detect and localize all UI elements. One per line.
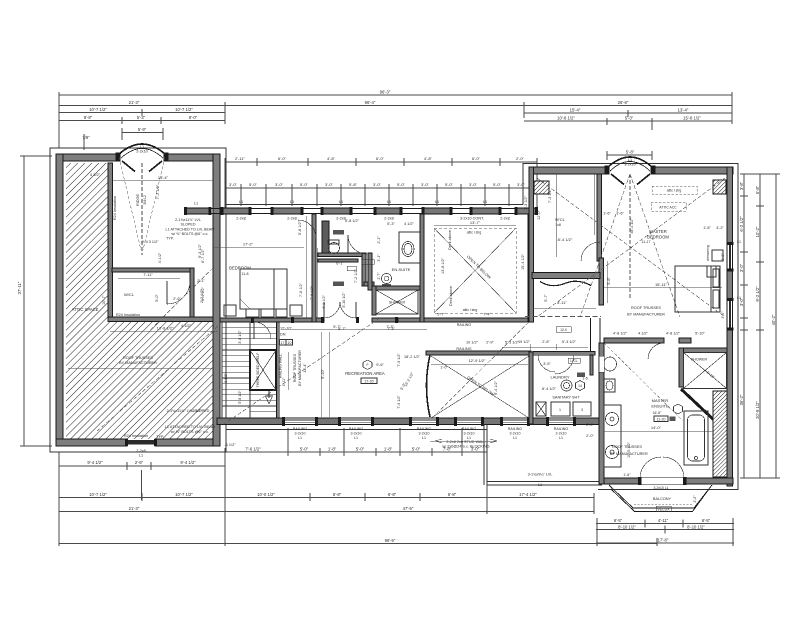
svg-text:10'-7 1/2": 10'-7 1/2" bbox=[89, 492, 107, 497]
svg-text:9'-2 1/2": 9'-2 1/2" bbox=[755, 286, 760, 302]
svg-text:SANITARY SHT: SANITARY SHT bbox=[552, 396, 580, 400]
svg-text:L1: L1 bbox=[737, 296, 741, 300]
svg-text:2-1¾x11⅞" LVL SLOPED: 2-1¾x11⅞" LVL SLOPED bbox=[167, 409, 210, 413]
svg-text:4'-8": 4'-8" bbox=[327, 156, 336, 161]
svg-text:5'-0": 5'-0" bbox=[412, 447, 421, 452]
svg-text:5'-0": 5'-0" bbox=[397, 182, 406, 187]
svg-text:2-2x8: 2-2x8 bbox=[287, 217, 297, 221]
svg-text:Deck above: Deck above bbox=[449, 286, 453, 306]
svg-text:10'-7 1/2": 10'-7 1/2" bbox=[175, 492, 193, 497]
svg-text:DN: DN bbox=[280, 333, 286, 337]
svg-text:TYP.: TYP. bbox=[166, 237, 174, 241]
svg-text:L1: L1 bbox=[387, 200, 391, 204]
svg-text:5'-3 1/2": 5'-3 1/2" bbox=[562, 340, 577, 344]
svg-text:8'-4 1/2": 8'-4 1/2" bbox=[542, 387, 557, 391]
svg-text:L1 ATTACHED TO LVL BEAM: L1 ATTACHED TO LVL BEAM bbox=[165, 425, 215, 429]
svg-text:5'-0": 5'-0" bbox=[155, 294, 159, 302]
svg-text:2-2x10: 2-2x10 bbox=[136, 150, 148, 154]
svg-text:attic l strg: attic l strg bbox=[463, 308, 478, 312]
svg-text:L1: L1 bbox=[339, 200, 343, 204]
svg-text:L1 ATTACHED TO LVL BEAM: L1 ATTACHED TO LVL BEAM bbox=[166, 228, 215, 232]
svg-text:TYP.: TYP. bbox=[156, 435, 164, 439]
svg-text:10'-2": 10'-2" bbox=[755, 226, 760, 237]
svg-text:L1: L1 bbox=[628, 158, 632, 162]
svg-text:1'-8": 1'-8" bbox=[328, 447, 337, 452]
svg-text:4'-2": 4'-2" bbox=[716, 226, 724, 230]
svg-text:10: 10 bbox=[288, 341, 292, 345]
svg-text:9'-4 3 1/2": 9'-4 3 1/2" bbox=[141, 240, 159, 244]
svg-text:3/4:12: 3/4:12 bbox=[143, 195, 147, 205]
svg-text:RAILING: RAILING bbox=[457, 323, 472, 327]
svg-text:5'-10": 5'-10" bbox=[695, 332, 705, 336]
svg-text:1x8: 1x8 bbox=[555, 223, 561, 227]
svg-text:6'-8": 6'-8" bbox=[448, 492, 457, 497]
svg-text:5'-8 1/2": 5'-8 1/2" bbox=[345, 219, 360, 223]
svg-text:L1: L1 bbox=[559, 436, 563, 440]
svg-text:2-2x8: 2-2x8 bbox=[136, 449, 146, 453]
svg-text:R24 Insulation: R24 Insulation bbox=[124, 434, 148, 438]
svg-text:2-2x8: 2-2x8 bbox=[236, 217, 246, 221]
svg-text:2-1¾x11⅞" LVL: 2-1¾x11⅞" LVL bbox=[175, 218, 201, 222]
svg-text:w/ ⅝" BOLTS @6" o.c.: w/ ⅝" BOLTS @6" o.c. bbox=[171, 232, 208, 236]
svg-text:3-2x10: 3-2x10 bbox=[419, 432, 430, 436]
svg-text:10'-8 1/2": 10'-8 1/2" bbox=[557, 116, 575, 121]
svg-text:1'-8": 1'-8" bbox=[384, 447, 393, 452]
svg-text:L1: L1 bbox=[354, 436, 358, 440]
svg-text:L1: L1 bbox=[140, 145, 144, 149]
svg-text:9'-6": 9'-6" bbox=[376, 363, 384, 367]
svg-text:4'-11": 4'-11" bbox=[658, 518, 669, 523]
svg-text:F: F bbox=[366, 363, 368, 367]
svg-text:9'-4 1/2": 9'-4 1/2" bbox=[180, 460, 196, 465]
svg-text:5'-0": 5'-0" bbox=[300, 447, 309, 452]
svg-text:2'-1": 2'-1" bbox=[377, 236, 381, 244]
svg-text:5'-7": 5'-7" bbox=[544, 294, 548, 302]
svg-text:w/ ⅝" BOLTS @6" o.c.: w/ ⅝" BOLTS @6" o.c. bbox=[171, 430, 209, 434]
svg-text:8'-10 1/2": 8'-10 1/2" bbox=[618, 525, 636, 530]
svg-text:RAILING: RAILING bbox=[293, 427, 308, 431]
svg-text:SLOPED: SLOPED bbox=[181, 223, 196, 227]
svg-text:2'-1": 2'-1" bbox=[197, 279, 205, 283]
svg-text:4 1/2": 4 1/2" bbox=[181, 324, 191, 328]
svg-text:RECREATION AREA: RECREATION AREA bbox=[345, 371, 385, 376]
svg-text:4 1/2": 4 1/2" bbox=[90, 172, 101, 177]
svg-text:VELUX: VELUX bbox=[657, 508, 670, 512]
svg-text:17'-4 1/2": 17'-4 1/2" bbox=[519, 492, 537, 497]
svg-text:5'-8 1/2": 5'-8 1/2" bbox=[298, 220, 302, 235]
svg-text:38'-4 1/2": 38'-4 1/2" bbox=[630, 218, 634, 234]
svg-text:17'-2": 17'-2" bbox=[243, 242, 254, 247]
svg-text:4'-11": 4'-11" bbox=[282, 377, 286, 386]
svg-text:18'-2 1/2": 18'-2 1/2" bbox=[404, 355, 421, 359]
svg-text:7'-3": 7'-3" bbox=[387, 327, 395, 331]
svg-text:L1: L1 bbox=[435, 200, 439, 204]
svg-text:14'-0": 14'-0" bbox=[651, 425, 662, 430]
svg-text:L1: L1 bbox=[513, 436, 517, 440]
svg-text:3'-0": 3'-0" bbox=[517, 182, 526, 187]
svg-text:3'-0": 3'-0" bbox=[325, 182, 334, 187]
svg-text:RAILING: RAILING bbox=[349, 427, 364, 431]
svg-text:L1: L1 bbox=[422, 436, 426, 440]
svg-text:3-2x10: 3-2x10 bbox=[351, 432, 362, 436]
svg-text:13'-7": 13'-7" bbox=[470, 220, 481, 225]
svg-text:10'-7 1/2": 10'-7 1/2" bbox=[89, 107, 107, 112]
svg-text:7'-2 1/2": 7'-2 1/2" bbox=[155, 184, 160, 199]
svg-text:2'-0": 2'-0" bbox=[586, 434, 594, 438]
svg-text:EN-SUITE: EN-SUITE bbox=[392, 267, 411, 272]
svg-text:2'-6": 2'-6" bbox=[135, 460, 144, 465]
svg-text:ROOF TRUSSES: ROOF TRUSSES bbox=[293, 353, 297, 382]
svg-text:L1: L1 bbox=[298, 436, 302, 440]
svg-text:26'-8": 26'-8" bbox=[618, 100, 629, 105]
svg-text:7'-2 1/2": 7'-2 1/2" bbox=[354, 268, 358, 283]
svg-text:12'-9 1/2": 12'-9 1/2" bbox=[469, 358, 486, 363]
svg-text:5'-0": 5'-0" bbox=[300, 182, 309, 187]
svg-text:RAILING: RAILING bbox=[462, 427, 477, 431]
svg-text:7'-6 1/2": 7'-6 1/2" bbox=[245, 447, 261, 452]
svg-text:5'-3": 5'-3" bbox=[137, 115, 146, 120]
svg-text:3-2x10: 3-2x10 bbox=[510, 432, 521, 436]
svg-text:ATTIC ACC: ATTIC ACC bbox=[659, 206, 677, 210]
svg-text:10'-5 1/2": 10'-5 1/2" bbox=[627, 441, 631, 458]
svg-text:4'-8": 4'-8" bbox=[424, 156, 433, 161]
svg-text:MASTER: MASTER bbox=[649, 229, 666, 234]
svg-text:ROOF TRUSSES: ROOF TRUSSES bbox=[631, 306, 661, 310]
svg-text:15'-11": 15'-11" bbox=[655, 282, 668, 287]
svg-text:8'-4 1/2": 8'-4 1/2" bbox=[558, 237, 573, 242]
svg-text:4'-1/2": 4'-1/2" bbox=[158, 252, 162, 263]
svg-text:7'-9 1/2": 7'-9 1/2" bbox=[397, 395, 401, 409]
svg-text:6'-0": 6'-0" bbox=[472, 156, 481, 161]
svg-text:2'-9": 2'-9" bbox=[486, 341, 494, 345]
svg-text:2-2x8: 2-2x8 bbox=[500, 217, 510, 221]
svg-text:Deck above: Deck above bbox=[448, 230, 452, 250]
svg-text:1'-6": 1'-6" bbox=[623, 473, 631, 477]
svg-text:8'-0": 8'-0" bbox=[189, 115, 198, 120]
svg-text:W/CL: W/CL bbox=[124, 292, 135, 297]
svg-text:3-2x10 L1: 3-2x10 L1 bbox=[653, 486, 668, 490]
svg-text:11-8: 11-8 bbox=[242, 272, 249, 276]
svg-text:RAILING: RAILING bbox=[456, 347, 471, 351]
svg-text:8'-7": 8'-7" bbox=[338, 327, 346, 331]
svg-text:attic l strg: attic l strg bbox=[467, 231, 482, 235]
svg-text:6'-1": 6'-1" bbox=[336, 262, 344, 266]
svg-text:RAILING: RAILING bbox=[554, 427, 569, 431]
svg-text:L/CL: L/CL bbox=[570, 359, 577, 363]
svg-text:7'-9 1/2": 7'-9 1/2" bbox=[397, 353, 401, 367]
svg-text:5'-3": 5'-3" bbox=[625, 116, 634, 121]
svg-text:13'-4": 13'-4" bbox=[158, 175, 169, 180]
svg-text:5'-10 1/2": 5'-10 1/2" bbox=[342, 292, 346, 308]
svg-text:14: 14 bbox=[578, 384, 582, 388]
svg-text:7'-3 1/2": 7'-3 1/2" bbox=[524, 195, 528, 210]
svg-text:3'-1": 3'-1" bbox=[377, 254, 381, 262]
svg-text:8 1/2": 8 1/2" bbox=[224, 373, 228, 383]
svg-text:BALCONY: BALCONY bbox=[653, 497, 672, 501]
svg-text:21'-3": 21'-3" bbox=[129, 506, 140, 511]
svg-text:9'-4 1/2": 9'-4 1/2" bbox=[87, 460, 103, 465]
svg-text:6'-5": 6'-5" bbox=[702, 518, 711, 523]
svg-text:L1: L1 bbox=[483, 200, 487, 204]
svg-text:3'-0": 3'-0" bbox=[373, 182, 382, 187]
svg-text:MASTER: MASTER bbox=[652, 398, 669, 403]
svg-text:BEDROOM: BEDROOM bbox=[647, 235, 669, 240]
svg-text:L1: L1 bbox=[194, 202, 198, 206]
svg-text:4 1/2": 4 1/2" bbox=[638, 332, 648, 336]
svg-text:2-2x10: 2-2x10 bbox=[556, 432, 567, 436]
svg-text:7'-3 1/2": 7'-3 1/2" bbox=[548, 188, 552, 203]
svg-text:5'-0": 5'-0" bbox=[493, 182, 502, 187]
svg-text:8'-10 1/2": 8'-10 1/2" bbox=[687, 525, 705, 530]
svg-text:7'-11": 7'-11" bbox=[143, 273, 153, 277]
svg-text:12'-0": 12'-0" bbox=[537, 210, 541, 220]
svg-text:2'-6": 2'-6" bbox=[173, 297, 181, 301]
svg-text:W'CL: W'CL bbox=[555, 217, 565, 222]
svg-text:3'-0": 3'-0" bbox=[421, 182, 430, 187]
svg-text:4 1/2": 4 1/2" bbox=[404, 222, 414, 226]
svg-text:2'-0": 2'-0" bbox=[516, 156, 525, 161]
svg-text:2'-11": 2'-11" bbox=[235, 156, 245, 161]
svg-text:SHOWER: SHOWER bbox=[691, 358, 708, 362]
svg-text:RAILING: RAILING bbox=[508, 427, 523, 431]
svg-text:BY MANUFACTURER: BY MANUFACTURER bbox=[627, 313, 665, 317]
svg-text:15'-8 1/2": 15'-8 1/2" bbox=[683, 116, 701, 121]
svg-text:6'-8": 6'-8" bbox=[388, 492, 397, 497]
svg-text:17'-8": 17'-8" bbox=[658, 538, 669, 543]
svg-text:19 1/2": 19 1/2" bbox=[518, 340, 531, 344]
svg-text:36'-2": 36'-2" bbox=[739, 394, 744, 405]
svg-text:11-20: 11-20 bbox=[657, 418, 666, 422]
svg-text:dressering: dressering bbox=[706, 245, 710, 261]
svg-text:RAILING WALL: RAILING WALL bbox=[279, 354, 283, 378]
svg-text:8'-8": 8'-8" bbox=[84, 115, 93, 120]
svg-text:7'-6 1/2": 7'-6 1/2" bbox=[299, 282, 303, 297]
svg-text:4'-8 1/2": 4'-8 1/2" bbox=[666, 332, 681, 336]
svg-text:w/ 2x6@24"o.c. BLOCKING: w/ 2x6@24"o.c. BLOCKING bbox=[442, 445, 489, 449]
svg-text:13'-8 1/2": 13'-8 1/2" bbox=[441, 257, 445, 274]
svg-text:5'-8": 5'-8" bbox=[626, 150, 635, 155]
svg-text:2'-7": 2'-7" bbox=[377, 272, 381, 280]
svg-text:12-0: 12-0 bbox=[560, 328, 567, 332]
svg-text:L1: L1 bbox=[538, 483, 542, 487]
svg-text:1'-0": 1'-0" bbox=[440, 366, 448, 370]
svg-text:17: 17 bbox=[281, 341, 285, 345]
svg-text:17-20: 17-20 bbox=[364, 380, 373, 384]
svg-text:47'-5": 47'-5" bbox=[403, 506, 414, 511]
svg-text:6'-8": 6'-8" bbox=[333, 492, 342, 497]
svg-text:12'-4": 12'-4" bbox=[303, 363, 307, 373]
svg-text:7/8": 7/8" bbox=[82, 135, 90, 140]
svg-text:6'-2 1/2": 6'-2 1/2" bbox=[739, 216, 744, 232]
svg-text:2-2x6 2x6 STUD WALL: 2-2x6 2x6 STUD WALL bbox=[446, 440, 485, 444]
svg-text:2'-0": 2'-0" bbox=[586, 423, 594, 427]
svg-text:7'-4": 7'-4" bbox=[483, 313, 491, 317]
svg-text:96'-3": 96'-3" bbox=[380, 90, 391, 95]
svg-text:BY MANUFACTURER: BY MANUFACTURER bbox=[119, 361, 157, 365]
svg-text:96'-5": 96'-5" bbox=[385, 538, 396, 543]
svg-text:5'-0": 5'-0" bbox=[249, 182, 258, 187]
svg-text:3-2x10: 3-2x10 bbox=[464, 432, 475, 436]
svg-text:10'-7 1/2": 10'-7 1/2" bbox=[175, 107, 193, 112]
svg-text:RIDGE: RIDGE bbox=[136, 194, 140, 206]
svg-text:ROOF TRUSSES: ROOF TRUSSES bbox=[123, 356, 153, 360]
svg-text:3'-0": 3'-0" bbox=[275, 182, 284, 187]
svg-text:13'-8 1/2": 13'-8 1/2" bbox=[157, 326, 174, 331]
svg-text:40'-2": 40'-2" bbox=[771, 314, 776, 325]
svg-text:21'-3": 21'-3" bbox=[129, 100, 140, 105]
svg-text:L1: L1 bbox=[290, 200, 294, 204]
svg-text:L1: L1 bbox=[139, 454, 143, 458]
svg-text:2-2x8: 2-2x8 bbox=[384, 217, 394, 221]
svg-text:6'-4 1/2": 6'-4 1/2" bbox=[201, 286, 205, 301]
svg-text:4'-8 1/2": 4'-8 1/2" bbox=[613, 332, 628, 336]
svg-text:4 1/2": 4 1/2" bbox=[192, 409, 202, 413]
svg-text:10 1/2": 10 1/2" bbox=[466, 341, 479, 345]
svg-text:L1: L1 bbox=[737, 240, 741, 244]
svg-text:96'-4": 96'-4" bbox=[365, 100, 376, 105]
svg-text:6'-5": 6'-5" bbox=[614, 518, 623, 523]
svg-text:BY MANUFACTURER: BY MANUFACTURER bbox=[298, 350, 302, 386]
svg-text:R24 Insulation: R24 Insulation bbox=[113, 196, 117, 220]
svg-text:37'-11": 37'-11" bbox=[17, 281, 22, 294]
svg-text:3'-8 1/2": 3'-8 1/2" bbox=[238, 330, 242, 344]
svg-text:1'-6": 1'-6" bbox=[603, 212, 611, 216]
svg-text:5'-7": 5'-7" bbox=[437, 313, 445, 317]
svg-text:SHOWER: SHOWER bbox=[389, 301, 406, 305]
svg-text:2'-8": 2'-8" bbox=[542, 340, 550, 344]
svg-text:-6 1/2": -6 1/2" bbox=[224, 443, 236, 447]
svg-text:1'-8": 1'-8" bbox=[703, 226, 711, 230]
svg-text:RAILING: RAILING bbox=[417, 427, 432, 431]
svg-text:10'-0 1/2": 10'-0 1/2" bbox=[257, 492, 275, 497]
svg-text:8'-11": 8'-11" bbox=[557, 301, 567, 305]
svg-text:5'-10": 5'-10" bbox=[321, 369, 325, 379]
svg-text:6'-7 1/2": 6'-7 1/2" bbox=[201, 248, 205, 263]
svg-text:R24 Insulation: R24 Insulation bbox=[116, 313, 140, 317]
svg-text:3'-8": 3'-8" bbox=[739, 181, 744, 190]
svg-text:5'-8": 5'-8" bbox=[349, 182, 358, 187]
svg-text:5'-6": 5'-6" bbox=[607, 277, 611, 285]
svg-text:5'-9": 5'-9" bbox=[138, 127, 147, 132]
svg-text:3: 3 bbox=[581, 408, 583, 412]
svg-text:9'-4 1/2": 9'-4 1/2" bbox=[494, 380, 498, 395]
svg-text:3-2x10: 3-2x10 bbox=[295, 432, 306, 436]
svg-text:3'-0": 3'-0" bbox=[229, 182, 238, 187]
svg-text:6'-0": 6'-0" bbox=[376, 156, 385, 161]
svg-text:10'-7": 10'-7" bbox=[102, 295, 106, 305]
svg-text:THREE SIDED SHELF: THREE SIDED SHELF bbox=[256, 353, 260, 388]
svg-text:3'-0": 3'-0" bbox=[739, 263, 744, 272]
svg-text:3'-0": 3'-0" bbox=[469, 182, 478, 187]
svg-text:3-1¾x9¼" LVL: 3-1¾x9¼" LVL bbox=[528, 473, 553, 477]
svg-text:5'-0": 5'-0" bbox=[356, 447, 365, 452]
svg-text:5'-8": 5'-8" bbox=[755, 185, 760, 194]
svg-text:3-2x10: 3-2x10 bbox=[624, 163, 636, 167]
svg-text:7'-6 1/2": 7'-6 1/2" bbox=[310, 285, 314, 300]
svg-text:11-17: 11-17 bbox=[642, 240, 651, 244]
svg-text:5'-8 1/2": 5'-8 1/2" bbox=[238, 390, 242, 404]
svg-text:3'-5": 3'-5" bbox=[543, 362, 551, 366]
svg-text:L1: L1 bbox=[239, 200, 243, 204]
svg-text:attic l strg: attic l strg bbox=[667, 189, 682, 193]
svg-text:12'-10": 12'-10" bbox=[280, 327, 292, 331]
svg-text:4'-1 1/2": 4'-1 1/2" bbox=[322, 294, 326, 309]
svg-text:16'-8": 16'-8" bbox=[653, 411, 662, 415]
svg-text:15'-4 1/2": 15'-4 1/2" bbox=[521, 253, 525, 270]
svg-text:5'-3": 5'-3" bbox=[387, 222, 395, 226]
svg-text:6'-0": 6'-0" bbox=[278, 156, 287, 161]
svg-text:20'-9 1/2": 20'-9 1/2" bbox=[755, 401, 760, 419]
svg-text:1'-6": 1'-6" bbox=[616, 212, 624, 216]
svg-text:ATTIC SPACE: ATTIC SPACE bbox=[72, 307, 99, 312]
svg-text:LAUNDRY: LAUNDRY bbox=[550, 375, 569, 380]
svg-text:5'-0": 5'-0" bbox=[445, 182, 454, 187]
svg-text:15'-4": 15'-4" bbox=[570, 108, 581, 113]
svg-text:1: 1 bbox=[559, 408, 561, 412]
svg-text:1-6: 1-6 bbox=[582, 377, 588, 381]
svg-text:2'-2": 2'-2" bbox=[693, 495, 697, 503]
svg-text:13'-4": 13'-4" bbox=[678, 108, 689, 113]
